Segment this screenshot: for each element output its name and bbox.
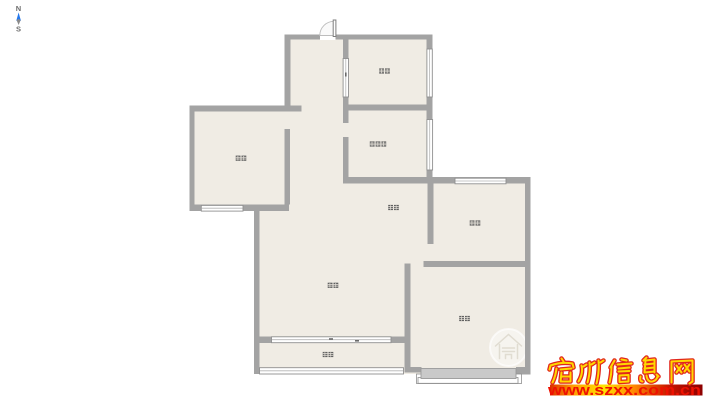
svg-text:www.szxx.com.cn: www.szxx.com.cn <box>547 383 701 399</box>
svg-text:N: N <box>16 4 21 13</box>
svg-text:S: S <box>16 25 21 34</box>
